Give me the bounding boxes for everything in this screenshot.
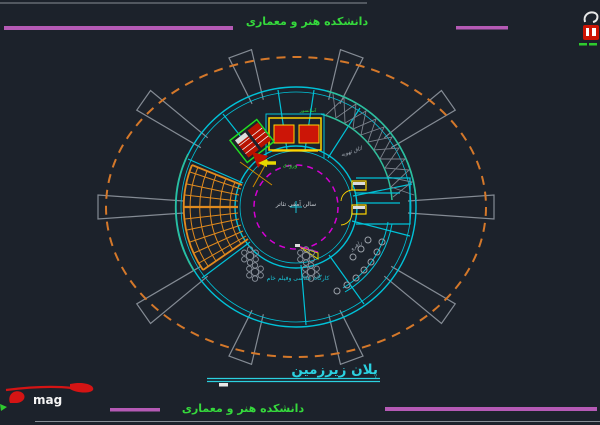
watermark-green-text <box>579 43 587 46</box>
door-swing-arc <box>341 190 352 201</box>
door-panel <box>353 206 365 209</box>
door-jamb <box>295 244 300 247</box>
corridor-label: راهرو <box>348 239 364 253</box>
watermark-mark <box>592 28 596 36</box>
cad-canvas: دانشکده هنر و معماری <box>0 0 600 425</box>
elevator-label: آسانسور <box>299 108 317 114</box>
vent-room-label: اتاق تهویه <box>340 144 365 158</box>
watermark-top-right <box>579 12 599 45</box>
column <box>350 254 356 260</box>
watermark-mark <box>586 28 589 36</box>
structural-fin <box>229 308 269 364</box>
cad-drawing: دانشکده هنر و معماری <box>0 0 600 425</box>
title-scale-chip <box>219 383 228 387</box>
elevator-cab <box>299 125 319 143</box>
structural-fin <box>323 50 363 106</box>
footer-project-text: دانشکده هنر و معماری <box>182 402 305 415</box>
watermark-swoosh-icon <box>585 12 598 22</box>
elevator-core: آسانسور <box>266 108 324 158</box>
top-left-magenta-rule <box>4 26 233 30</box>
teal-arc <box>176 154 194 271</box>
watermark-bottom-left: mag <box>0 383 93 411</box>
header-project-text: دانشکده هنر و معماری <box>246 15 369 28</box>
column <box>353 275 359 281</box>
elevator-cab <box>274 125 294 143</box>
workshop-label: کارگاه عکاسی وفیلم خام <box>267 274 330 282</box>
logo-brush-blob <box>70 383 93 393</box>
structural-fin <box>229 50 269 106</box>
top-right-magenta-rule <box>456 26 508 30</box>
footer-magenta-rule-short <box>110 408 160 412</box>
door-swing-arc <box>341 214 352 225</box>
teal-arc <box>327 91 416 199</box>
structural-fin <box>408 195 494 219</box>
title-block: پلان زیرزمین <box>207 362 380 387</box>
footer-magenta-rule-long <box>385 407 597 411</box>
watermark-red-block <box>583 25 599 40</box>
structural-fin <box>98 195 184 219</box>
column <box>361 267 367 273</box>
column <box>365 237 371 243</box>
stair-radials <box>185 172 246 263</box>
watermark-green-text <box>589 43 597 46</box>
logo-swoosh-icon <box>6 387 72 390</box>
title-underline <box>207 379 380 382</box>
column <box>334 288 340 294</box>
structural-fin <box>323 308 363 364</box>
drawing-title: پلان زیرزمین <box>291 362 378 378</box>
entrance-label: ورودی <box>283 163 298 169</box>
logo-green-mark <box>0 404 7 411</box>
logo-text: mag <box>33 393 62 407</box>
door-panel <box>353 182 365 185</box>
logo-red-glyph <box>9 391 24 403</box>
